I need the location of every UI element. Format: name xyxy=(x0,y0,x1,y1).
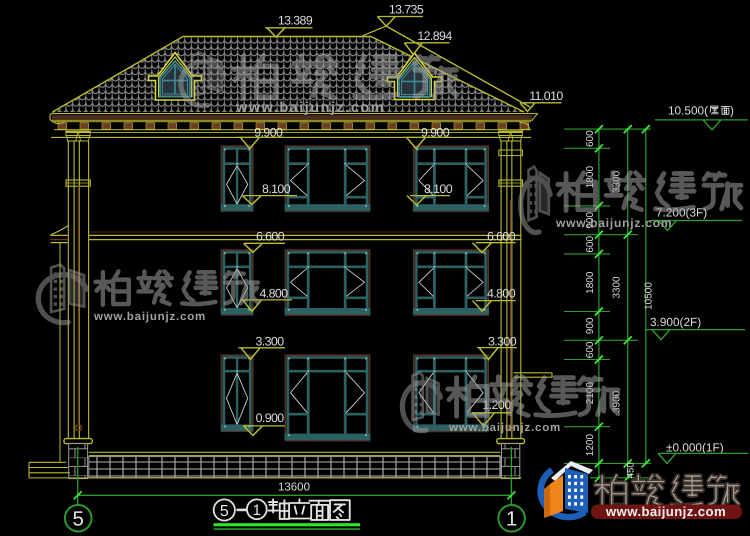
svg-text:4.800: 4.800 xyxy=(487,286,516,300)
svg-text:3300: 3300 xyxy=(612,276,623,299)
svg-text:12.894: 12.894 xyxy=(417,29,452,43)
svg-text:450: 450 xyxy=(626,462,637,478)
svg-text:www.baijunjz.com: www.baijunjz.com xyxy=(235,100,385,116)
svg-text:4.800: 4.800 xyxy=(259,286,288,300)
svg-text:600: 600 xyxy=(585,341,596,358)
svg-text:3.900(2F): 3.900(2F) xyxy=(650,315,701,329)
svg-text:±0.000(1F): ±0.000(1F) xyxy=(666,440,724,454)
svg-text:6.600: 6.600 xyxy=(256,229,285,243)
svg-text:13600: 13600 xyxy=(278,482,310,494)
svg-text:3.300: 3.300 xyxy=(488,334,517,348)
svg-text:900: 900 xyxy=(585,317,596,334)
svg-text:600: 600 xyxy=(585,130,596,147)
svg-text:8.100: 8.100 xyxy=(262,182,291,196)
svg-text:13.389: 13.389 xyxy=(278,14,313,28)
svg-text:www.baijunjz.com: www.baijunjz.com xyxy=(555,216,672,230)
svg-text:1200: 1200 xyxy=(585,434,596,457)
svg-text:6.600: 6.600 xyxy=(487,229,516,243)
svg-text:10500: 10500 xyxy=(644,282,655,310)
svg-text:10.500(: 10.500( xyxy=(668,104,708,118)
svg-text:www.baijunjz.com: www.baijunjz.com xyxy=(448,422,561,434)
svg-text:www.baijunjz.com: www.baijunjz.com xyxy=(605,504,726,519)
svg-text:8.100: 8.100 xyxy=(424,182,453,196)
svg-text:5: 5 xyxy=(220,503,229,520)
svg-text:1800: 1800 xyxy=(585,271,596,294)
svg-text:11.010: 11.010 xyxy=(529,89,563,103)
svg-text:0.900: 0.900 xyxy=(256,411,285,425)
svg-text:5: 5 xyxy=(72,508,83,531)
svg-text:): ) xyxy=(730,104,734,118)
svg-text:13.735: 13.735 xyxy=(389,3,424,17)
svg-text:1: 1 xyxy=(506,508,517,531)
svg-text:600: 600 xyxy=(585,236,596,253)
svg-text:3.300: 3.300 xyxy=(255,334,284,348)
svg-text:1: 1 xyxy=(253,502,261,519)
svg-text:www.baijunjz.com: www.baijunjz.com xyxy=(93,311,206,323)
